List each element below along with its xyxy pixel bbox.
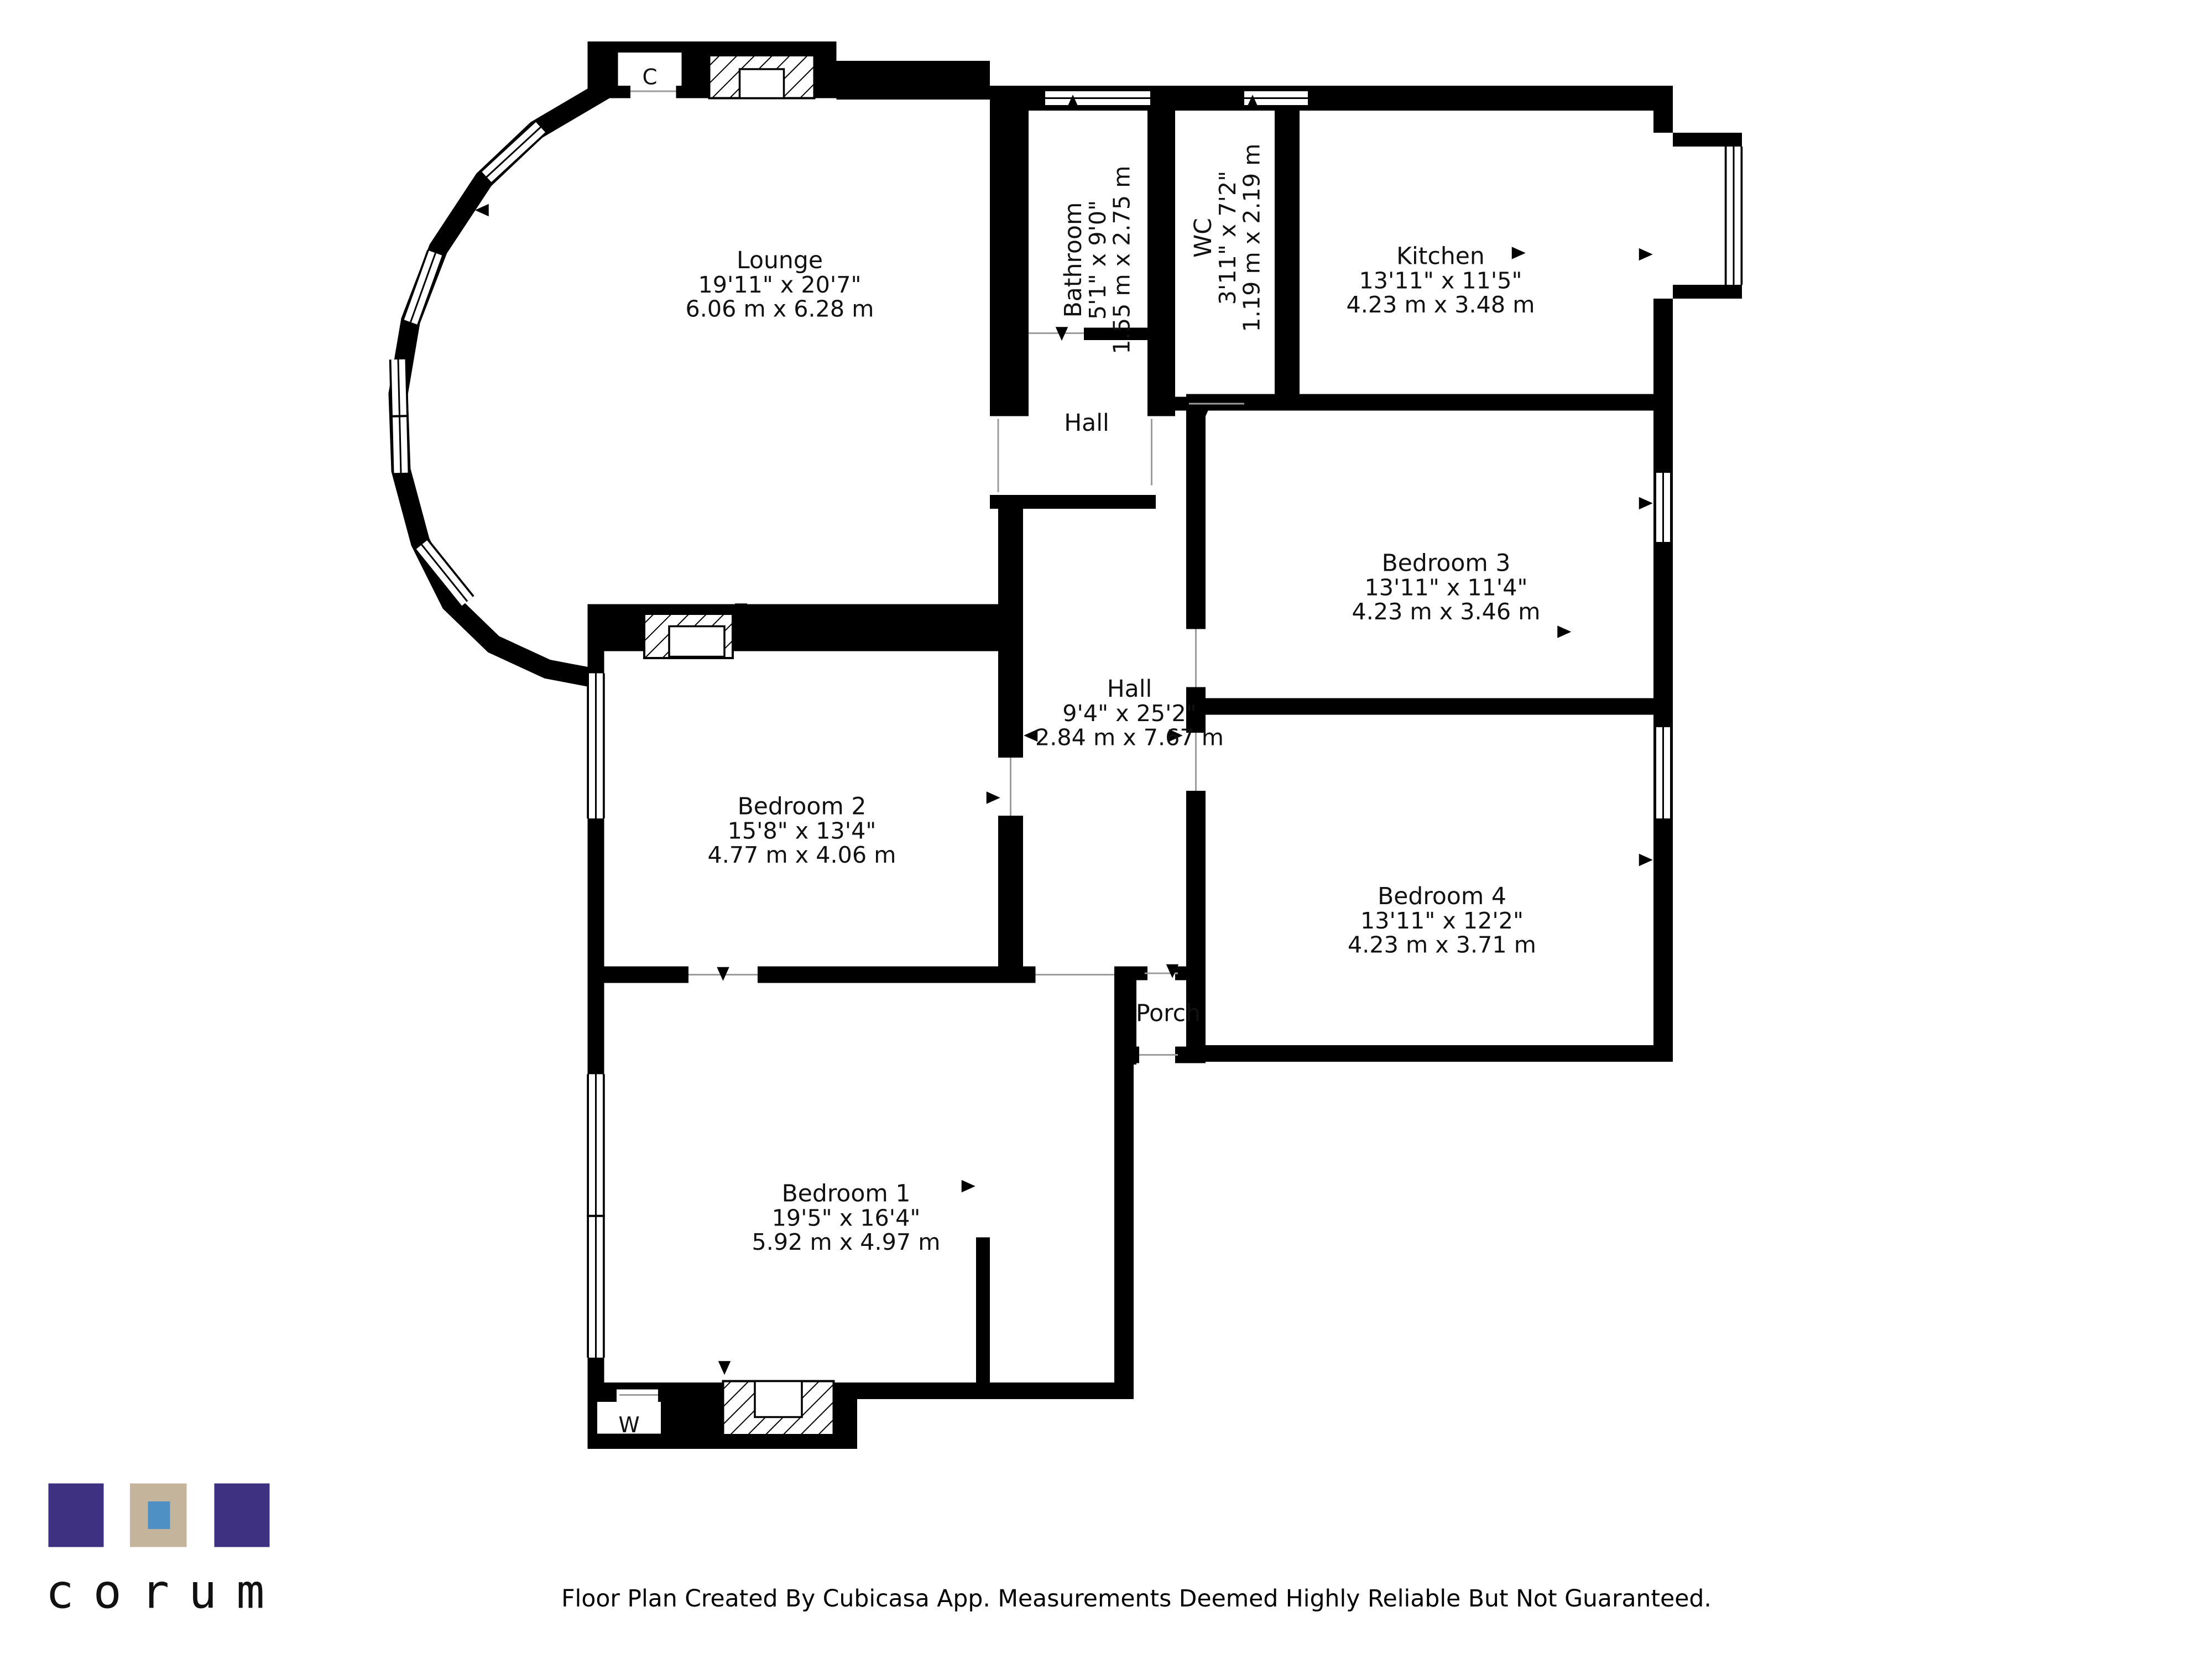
room-label-wc-name: WC [1190,218,1217,258]
logo-wordmark: corum [46,1565,284,1620]
wall-segment [1114,1065,1134,1399]
wall-segment [837,61,990,100]
wall-segment [588,967,689,983]
wall-segment [976,1238,990,1383]
room-label-bedroom-4-name: Bedroom 4 [1378,883,1506,910]
wall-segment [990,495,1156,509]
wall-segment [990,111,1029,328]
wall-segment [1275,86,1300,411]
wall-segment [758,967,1036,983]
room-label-bedroom-3-imperial: 13'11" x 11'4" [1365,574,1528,601]
room-label-hall-small: Hall [1064,410,1109,437]
room-label-bedroom-1-imperial: 19'5" x 16'4" [772,1204,921,1231]
closet-w-label: W [618,1413,639,1438]
wall-segment [1147,111,1175,416]
room-label-kitchen-name: Kitchen [1396,243,1485,270]
floorplan-canvas: Lounge19'11" x 20'7"6.06 m x 6.28 mBathr… [0,0,2212,1659]
room-label-lounge-imperial: 19'11" x 20'7" [698,272,862,298]
wall-segment [998,816,1023,967]
wall-segment [1186,687,1206,698]
footer-disclaimer: Floor Plan Created By Cubicasa App. Meas… [561,1585,1712,1613]
room-label-lounge-name: Lounge [737,247,823,274]
room-label-wc-metric: 1.19 m x 2.19 m [1239,144,1265,332]
room-label-lounge-metric: 6.06 m x 6.28 m [686,296,874,322]
logo-blue-icon [148,1501,170,1529]
chimney-flue-box [740,69,784,98]
wall-segment [1186,698,1673,715]
room-label-bedroom-1-metric: 5.92 m x 4.97 m [752,1229,941,1255]
room-label-hall-imperial: 9'4" x 25'2" [1062,700,1197,727]
room-label-bedroom-2-name: Bedroom 2 [738,794,867,821]
room-label-porch-name: Porch [1136,1000,1201,1027]
logo-square-right [215,1484,270,1547]
room-label-kitchen-imperial: 13'11" x 11'5" [1359,267,1522,294]
chimney-flue-box [669,627,724,657]
wall-segment [1186,411,1206,629]
logo-square-left [49,1484,104,1547]
bedroom1-window [587,1074,605,1358]
room-label-hall-name: Hall [1107,676,1152,703]
room-label-kitchen-metric: 4.23 m x 3.48 m [1347,291,1535,318]
chimney-flue-box [755,1381,802,1417]
room-label-bathroom-name: Bathroom [1060,202,1087,318]
room-label-wc-imperial: 3'11" x 7'2" [1214,171,1241,305]
room-label-bathroom-imperial: 5'1" x 9'0" [1084,200,1111,320]
wall-segment [857,1383,1134,1399]
room-label-hall-small-name: Hall [1064,410,1109,437]
wall-segment [815,55,837,98]
wall-segment [1653,299,1673,1045]
wall-segment [1114,1047,1139,1063]
wall-segment [1186,394,1673,411]
floorplan-page: Lounge19'11" x 20'7"6.06 m x 6.28 mBathr… [0,0,2212,1659]
room-label-bedroom-1-name: Bedroom 1 [782,1181,911,1208]
bay-window-pane [390,359,408,473]
room-label-bedroom-4-metric: 4.23 m x 3.71 m [1348,932,1536,958]
room-label-bedroom-2-metric: 4.77 m x 4.06 m [708,842,896,868]
wall-segment [1186,1045,1673,1062]
closet-c-label: C [642,65,657,90]
wall-segment [1673,285,1742,299]
room-label-bedroom-4-imperial: 13'11" x 12'2" [1360,907,1524,934]
room-label-bedroom-2-imperial: 15'8" x 13'4" [728,817,877,844]
room-label-bedroom-3-name: Bedroom 3 [1382,550,1511,577]
room-label-porch: Porch [1136,1000,1201,1027]
wall-segment [1673,133,1742,147]
wall-segment [1653,111,1673,133]
wall-segment [682,41,709,98]
room-label-bathroom-metric: 1.55 m x 2.75 m [1109,166,1135,354]
wall-segment [990,328,1029,416]
room-label-bedroom-3-metric: 4.23 m x 3.46 m [1352,598,1541,625]
room-label-hall-metric: 2.84 m x 7.67 m [1035,724,1224,751]
